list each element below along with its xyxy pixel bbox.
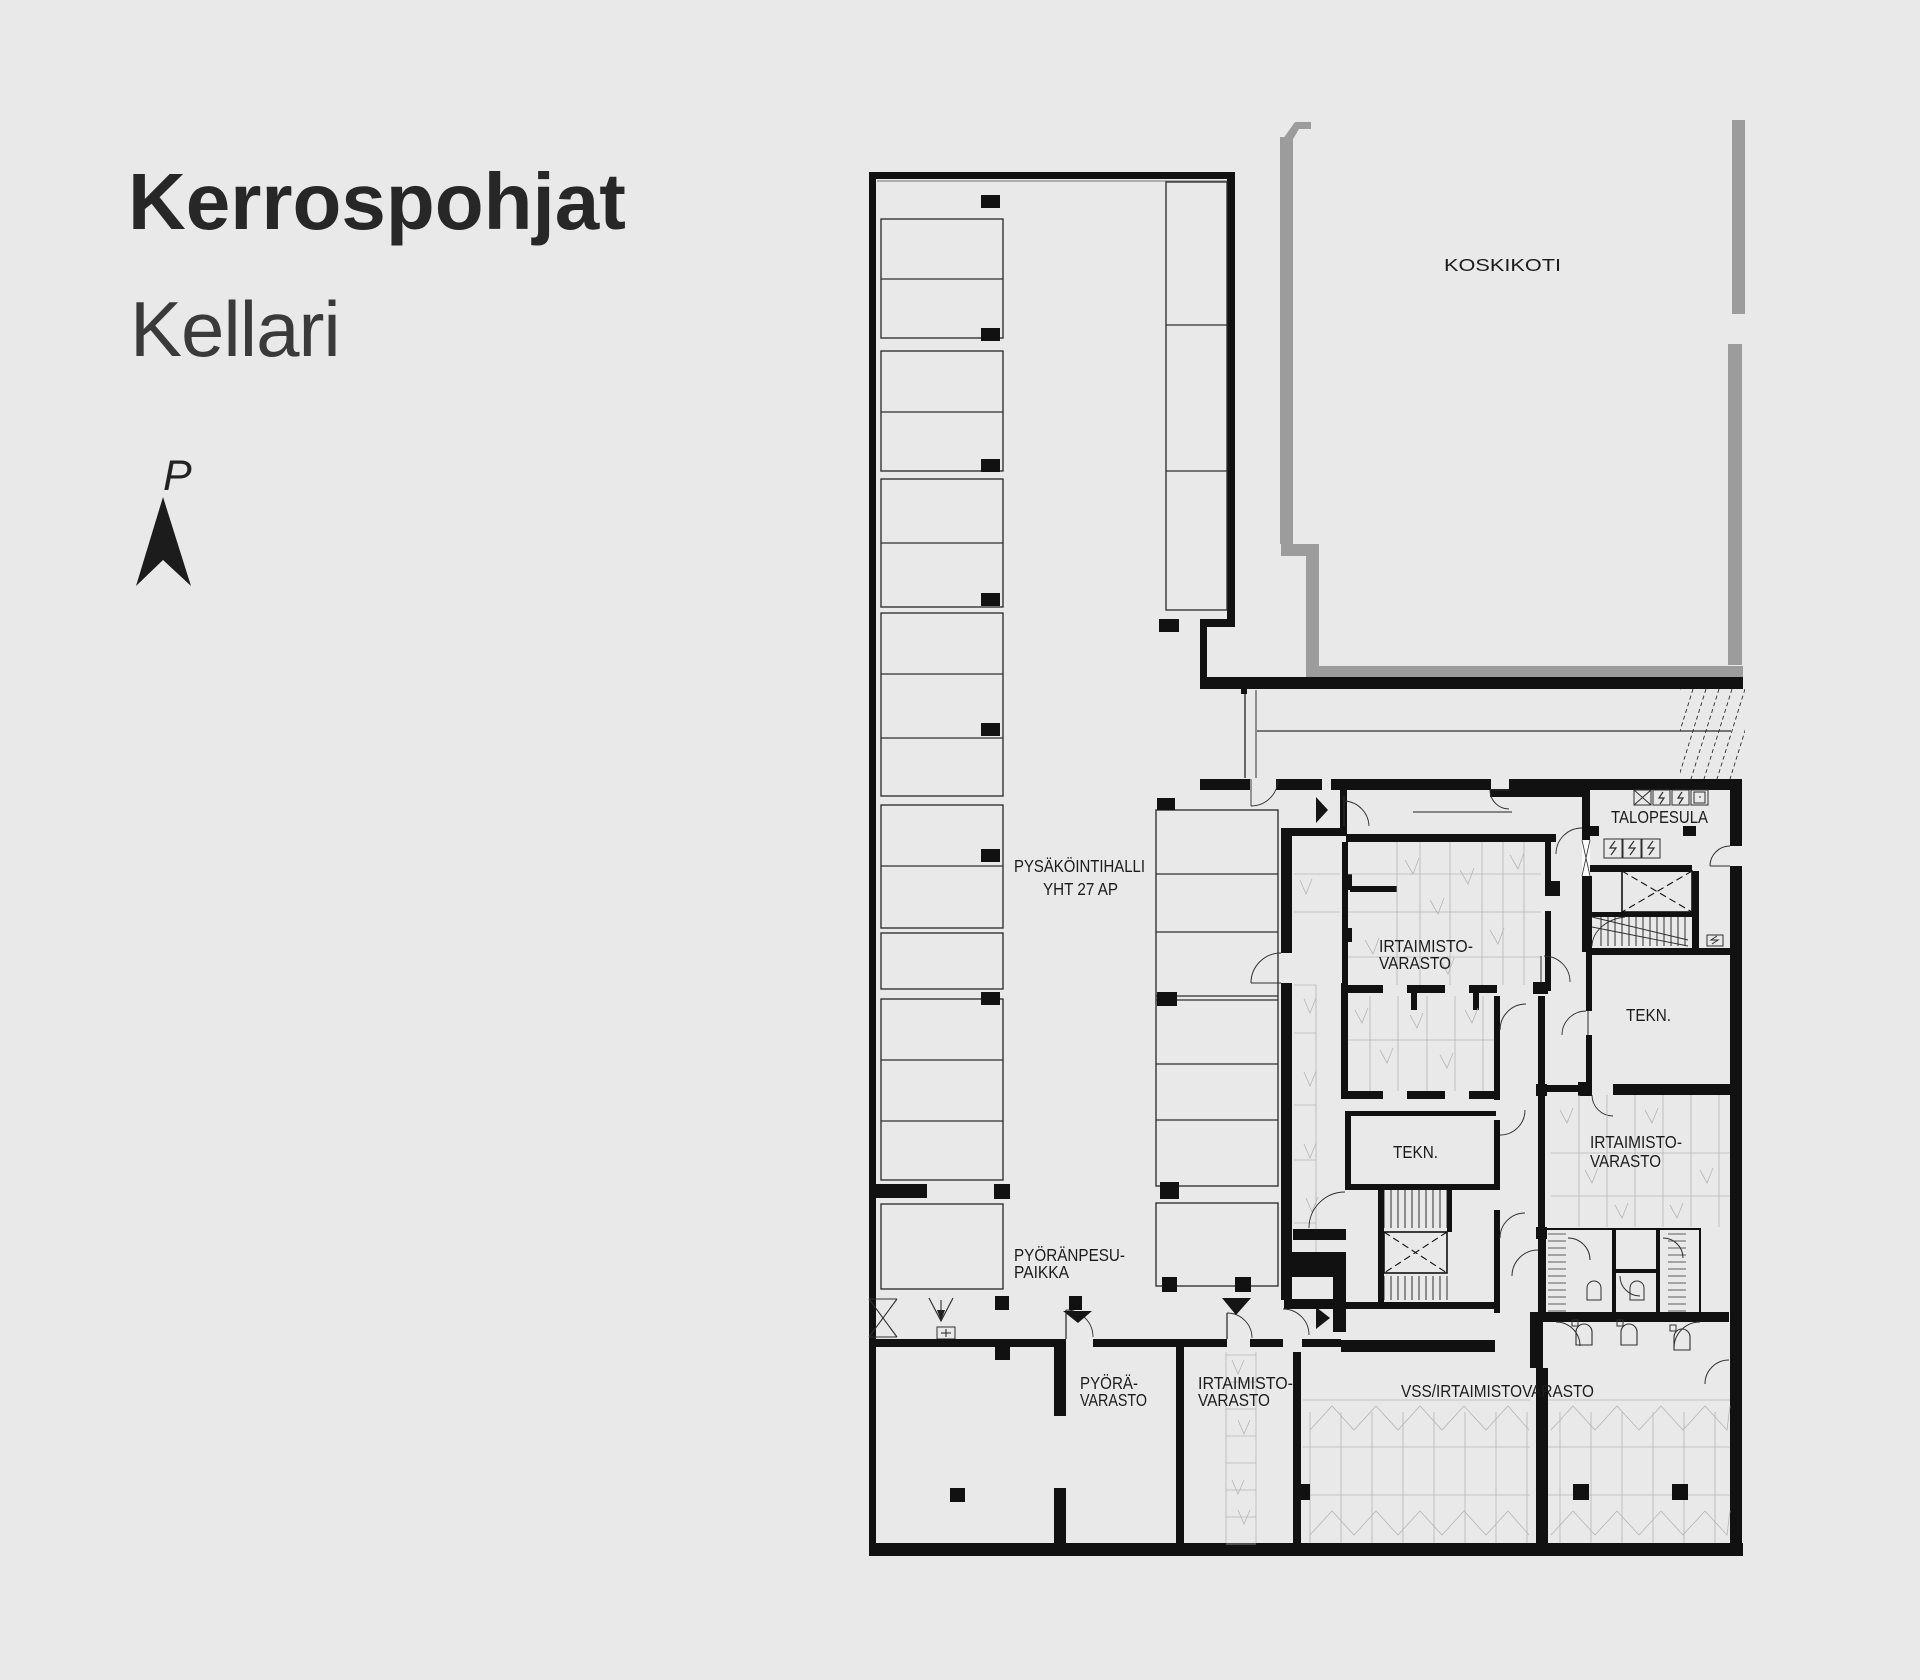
svg-text:PAIKKA: PAIKKA [1014,1262,1069,1282]
svg-text:VARASTO: VARASTO [1198,1390,1270,1410]
svg-text:Kellari: Kellari [130,285,340,373]
svg-text:TEKN.: TEKN. [1393,1142,1438,1162]
svg-text:VARASTO: VARASTO [1590,1151,1661,1171]
svg-text:YHT 27 AP: YHT 27 AP [1043,879,1118,899]
svg-text:PYSÄKÖINTIHALLI: PYSÄKÖINTIHALLI [1014,856,1145,876]
svg-text:VARASTO: VARASTO [1080,1390,1147,1410]
svg-text:TEKN.: TEKN. [1626,1005,1671,1025]
svg-text:VSS/IRTAIMISTOVARASTO: VSS/IRTAIMISTOVARASTO [1401,1381,1594,1401]
svg-text:TALOPESULA: TALOPESULA [1611,807,1708,827]
svg-text:Kerrospohjat: Kerrospohjat [128,157,626,246]
svg-text:KOSKIKOTI: KOSKIKOTI [1444,255,1561,275]
svg-text:P: P [163,452,192,500]
svg-text:VARASTO: VARASTO [1379,953,1451,973]
svg-text:IRTAIMISTO-: IRTAIMISTO- [1590,1132,1682,1152]
